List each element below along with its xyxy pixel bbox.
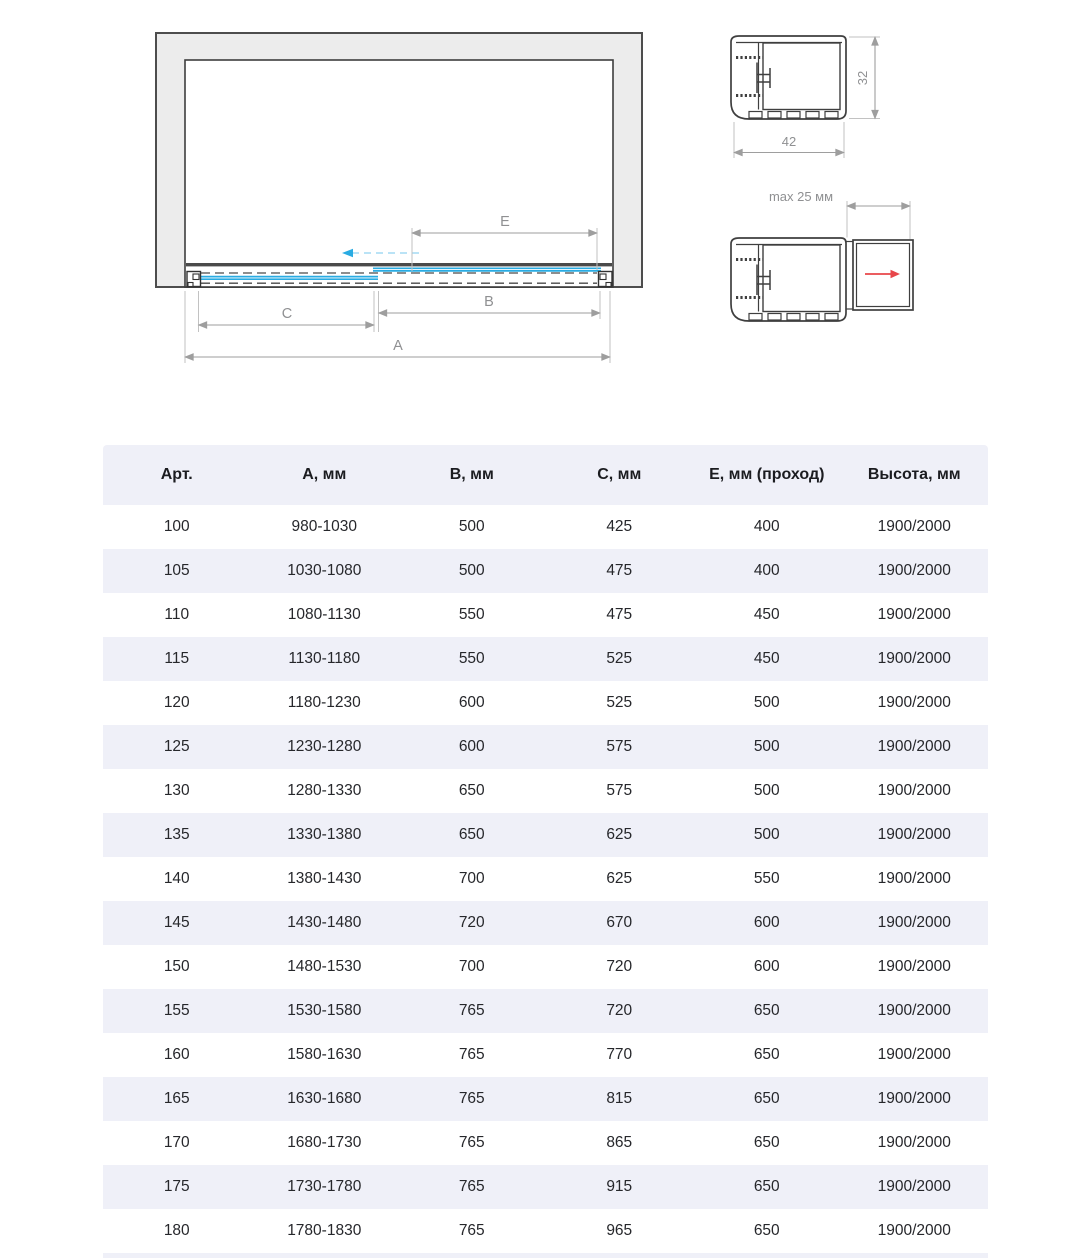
table-cell: 625 <box>546 870 694 888</box>
dim-label-e: E <box>500 214 510 230</box>
table-cell: 1280-1330 <box>251 782 399 800</box>
table-cell: 1530-1580 <box>251 1002 399 1020</box>
table-header-cell: А, мм <box>251 466 399 484</box>
table-cell: 1900/2000 <box>841 694 989 712</box>
table-cell: 525 <box>546 650 694 668</box>
table-cell: 135 <box>103 826 251 844</box>
dimension-C: C <box>199 291 375 332</box>
table-cell: 1900/2000 <box>841 606 989 624</box>
table-cell: 1230-1280 <box>251 738 399 756</box>
table-cell: 105 <box>103 562 251 580</box>
table-cell: 1900/2000 <box>841 914 989 932</box>
table-cell: 600 <box>693 958 841 976</box>
niche-plan-view: E B C A <box>156 33 642 363</box>
wall-profile-section: 32 42 <box>731 36 880 158</box>
table-cell: 1630-1680 <box>251 1090 399 1108</box>
table-cell: 500 <box>693 782 841 800</box>
table-row: 1101080-11305504754501900/2000 <box>103 593 988 637</box>
dimension-32: 32 <box>849 37 880 119</box>
table-cell: 1900/2000 <box>841 1178 989 1196</box>
table-header-cell: С, мм <box>546 466 694 484</box>
table-cell: 175 <box>103 1178 251 1196</box>
table-cell: 650 <box>693 1134 841 1152</box>
table-partial-row <box>103 1253 988 1258</box>
table-cell: 500 <box>693 694 841 712</box>
table-cell: 600 <box>398 738 546 756</box>
table-cell: 130 <box>103 782 251 800</box>
dim-label-b: B <box>484 294 494 310</box>
table-cell: 140 <box>103 870 251 888</box>
table-cell: 500 <box>693 826 841 844</box>
table-cell: 650 <box>398 782 546 800</box>
dim-label-c: C <box>282 306 292 322</box>
table-cell: 180 <box>103 1222 251 1240</box>
table-cell: 425 <box>546 518 694 536</box>
table-cell: 965 <box>546 1222 694 1240</box>
table-cell: 500 <box>693 738 841 756</box>
table-cell: 125 <box>103 738 251 756</box>
table-cell: 650 <box>398 826 546 844</box>
table-header-row: Арт. А, мм В, мм С, мм Е, мм (проход) Вы… <box>103 445 988 505</box>
dimension-A: A <box>185 291 610 363</box>
table-cell: 550 <box>398 606 546 624</box>
table-row: 1251230-12806005755001900/2000 <box>103 725 988 769</box>
right-wall-profile <box>599 272 613 287</box>
table-row: 1051030-10805004754001900/2000 <box>103 549 988 593</box>
table-row: 1501480-15307007206001900/2000 <box>103 945 988 989</box>
profile-outline <box>731 36 846 119</box>
table-cell: 1900/2000 <box>841 562 989 580</box>
table-cell: 700 <box>398 870 546 888</box>
table-cell: 1430-1480 <box>251 914 399 932</box>
left-wall-profile <box>187 272 201 287</box>
table-cell: 120 <box>103 694 251 712</box>
table-cell: 160 <box>103 1046 251 1064</box>
table-cell: 575 <box>546 738 694 756</box>
extension-profile <box>853 240 913 310</box>
table-row: 1451430-14807206706001900/2000 <box>103 901 988 945</box>
table-header-cell: Е, мм (проход) <box>693 466 841 484</box>
dimension-42: 42 <box>734 122 844 158</box>
table-cell: 550 <box>398 650 546 668</box>
table-cell: 525 <box>546 694 694 712</box>
table-cell: 500 <box>398 562 546 580</box>
table-cell: 150 <box>103 958 251 976</box>
table-cell: 400 <box>693 562 841 580</box>
table-cell: 1900/2000 <box>841 1090 989 1108</box>
table-cell: 720 <box>546 1002 694 1020</box>
table-header-cell: Высота, мм <box>841 466 989 484</box>
table-cell: 475 <box>546 562 694 580</box>
table-cell: 1900/2000 <box>841 650 989 668</box>
table-row: 1601580-16307657706501900/2000 <box>103 1033 988 1077</box>
profile-ribs <box>749 112 838 119</box>
table-row: 1551530-15807657206501900/2000 <box>103 989 988 1033</box>
table-cell: 110 <box>103 606 251 624</box>
table-cell: 650 <box>693 1090 841 1108</box>
table-cell: 450 <box>693 606 841 624</box>
table-cell: 700 <box>398 958 546 976</box>
table-cell: 1680-1730 <box>251 1134 399 1152</box>
table-cell: 770 <box>546 1046 694 1064</box>
table-cell: 1380-1430 <box>251 870 399 888</box>
table-cell: 650 <box>693 1002 841 1020</box>
table-cell: 1330-1380 <box>251 826 399 844</box>
technical-drawing: E B C A <box>0 0 1087 432</box>
table-cell: 550 <box>693 870 841 888</box>
table-cell: 1900/2000 <box>841 782 989 800</box>
table-row: 1301280-13306505755001900/2000 <box>103 769 988 813</box>
table-cell: 915 <box>546 1178 694 1196</box>
table-cell: 450 <box>693 650 841 668</box>
table-cell: 1900/2000 <box>841 870 989 888</box>
table-cell: 600 <box>398 694 546 712</box>
wall-profile-extension-section: max 25 мм <box>731 189 913 321</box>
table-cell: 1730-1780 <box>251 1178 399 1196</box>
table-row: 1651630-16807658156501900/2000 <box>103 1077 988 1121</box>
table-cell: 765 <box>398 1134 546 1152</box>
table-cell: 1900/2000 <box>841 958 989 976</box>
dim-label-max25: max 25 мм <box>769 189 833 204</box>
table-row: 1401380-14307006255501900/2000 <box>103 857 988 901</box>
table-cell: 815 <box>546 1090 694 1108</box>
table-cell: 145 <box>103 914 251 932</box>
table-row: 1351330-13806506255001900/2000 <box>103 813 988 857</box>
table-cell: 1480-1530 <box>251 958 399 976</box>
table-cell: 1900/2000 <box>841 738 989 756</box>
dim-label-42: 42 <box>782 134 796 149</box>
table-cell: 100 <box>103 518 251 536</box>
table-body: 100980-10305004254001900/20001051030-108… <box>103 505 988 1253</box>
table-cell: 765 <box>398 1178 546 1196</box>
table-row: 100980-10305004254001900/2000 <box>103 505 988 549</box>
dim-label-a: A <box>393 338 403 354</box>
profile-outline <box>731 238 846 321</box>
profile-ribs <box>749 314 838 321</box>
table-cell: 400 <box>693 518 841 536</box>
table-cell: 765 <box>398 1046 546 1064</box>
table-cell: 650 <box>693 1222 841 1240</box>
table-cell: 865 <box>546 1134 694 1152</box>
table-cell: 165 <box>103 1090 251 1108</box>
table-cell: 765 <box>398 1090 546 1108</box>
table-cell: 475 <box>546 606 694 624</box>
spec-table: Арт. А, мм В, мм С, мм Е, мм (проход) Вы… <box>103 445 988 1258</box>
dimension-max-25: max 25 мм <box>769 189 910 239</box>
table-cell: 1900/2000 <box>841 1222 989 1240</box>
table-cell: 1900/2000 <box>841 518 989 536</box>
table-cell: 765 <box>398 1222 546 1240</box>
table-cell: 625 <box>546 826 694 844</box>
table-cell: 650 <box>693 1178 841 1196</box>
table-header-cell: В, мм <box>398 466 546 484</box>
table-cell: 670 <box>546 914 694 932</box>
table-cell: 155 <box>103 1002 251 1020</box>
table-cell: 650 <box>693 1046 841 1064</box>
table-cell: 1780-1830 <box>251 1222 399 1240</box>
table-cell: 1900/2000 <box>841 826 989 844</box>
top-rail <box>186 263 612 266</box>
table-cell: 1130-1180 <box>251 650 399 668</box>
table-cell: 1180-1230 <box>251 694 399 712</box>
niche-opening <box>185 60 613 287</box>
table-cell: 1080-1130 <box>251 606 399 624</box>
table-cell: 765 <box>398 1002 546 1020</box>
dim-label-32: 32 <box>855 71 870 85</box>
dimension-B: B <box>374 291 600 332</box>
table-cell: 980-1030 <box>251 518 399 536</box>
table-row: 1151130-11805505254501900/2000 <box>103 637 988 681</box>
table-row: 1801780-18307659656501900/2000 <box>103 1209 988 1253</box>
table-cell: 170 <box>103 1134 251 1152</box>
table-row: 1751730-17807659156501900/2000 <box>103 1165 988 1209</box>
table-row: 1701680-17307658656501900/2000 <box>103 1121 988 1165</box>
table-cell: 720 <box>546 958 694 976</box>
table-cell: 600 <box>693 914 841 932</box>
table-cell: 1900/2000 <box>841 1046 989 1064</box>
table-cell: 1030-1080 <box>251 562 399 580</box>
table-cell: 575 <box>546 782 694 800</box>
spec-sheet-page: E B C A <box>0 0 1087 1258</box>
table-cell: 1900/2000 <box>841 1134 989 1152</box>
table-cell: 500 <box>398 518 546 536</box>
table-cell: 1900/2000 <box>841 1002 989 1020</box>
table-header-cell: Арт. <box>103 466 251 484</box>
table-cell: 115 <box>103 650 251 668</box>
table-cell: 1580-1630 <box>251 1046 399 1064</box>
table-row: 1201180-12306005255001900/2000 <box>103 681 988 725</box>
table-cell: 720 <box>398 914 546 932</box>
